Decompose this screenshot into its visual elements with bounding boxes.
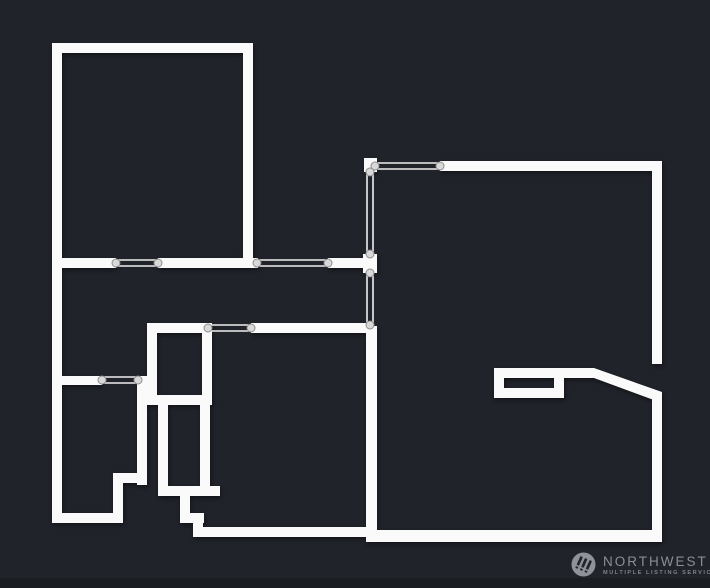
wall-bottom-run [193,527,373,537]
opening-bottom-left-room-hinge-dot [134,376,142,384]
floor-plan-svg [0,0,710,588]
wall-hall-a [52,258,116,268]
opening-right-room-upper-hinge-dot [366,168,374,176]
opening-bottom-left-room-hinge-dot [98,376,106,384]
wall-bl-room-right [137,376,147,485]
opening-hall-2-hinge-dot [253,259,261,267]
opening-right-room-lower-hinge-dot [366,269,374,277]
wall-right-room-left [366,326,377,536]
floor-plan-image: NORTHWEST MULTIPLE LISTING SERVICE® [0,0,710,588]
wall-mid-b [251,323,368,333]
wall-fireplace-bottom [494,388,564,398]
wall-left-outer [52,43,62,523]
nwmls-wordmark: NORTHWEST MULTIPLE LISTING SERVICE® [603,552,710,577]
opening-right-room-upper-hinge-dot [366,250,374,258]
wall-closet-left [147,323,157,405]
wall-top-left-room-right [243,43,253,268]
nwmls-brand-text: NORTHWEST [603,555,710,569]
nwmls-watermark: NORTHWEST MULTIPLE LISTING SERVICE® [571,552,710,577]
opening-hall-1-hinge-dot [154,259,162,267]
wall-closet-right [202,323,212,405]
nwmls-logo-icon [571,552,596,577]
wall-fireplace-right [554,378,564,398]
plan-background [0,0,710,588]
wall-right-outer-lower [652,394,662,542]
wall-bl-door-a [52,376,102,385]
opening-closet-door-hinge-dot [204,324,212,332]
wall-top-left-room-top [52,43,253,53]
opening-right-room-lower-hinge-dot [366,321,374,329]
wall-bl-room-bottom [52,513,123,523]
opening-closet-door-hinge-dot [247,324,255,332]
wall-fireplace-stub [494,368,594,378]
wall-stair-right [200,405,210,488]
wall-right-room-top [440,161,662,171]
bottom-edge-strip [0,578,710,588]
opening-hall-2-hinge-dot [324,259,332,267]
nwmls-tagline-text: MULTIPLE LISTING SERVICE® [603,571,710,577]
opening-hall-1-hinge-dot [112,259,120,267]
wall-right-room-bottom [366,530,662,542]
wall-stair-tread-2 [180,513,204,523]
opening-right-room-top-hinge-dot [436,162,444,170]
wall-hall-c [328,258,366,268]
wall-right-outer-upper [652,161,662,364]
wall-hall-b [158,258,258,268]
wall-stair-left [158,405,168,488]
wall-stair-tread-1 [158,486,220,496]
